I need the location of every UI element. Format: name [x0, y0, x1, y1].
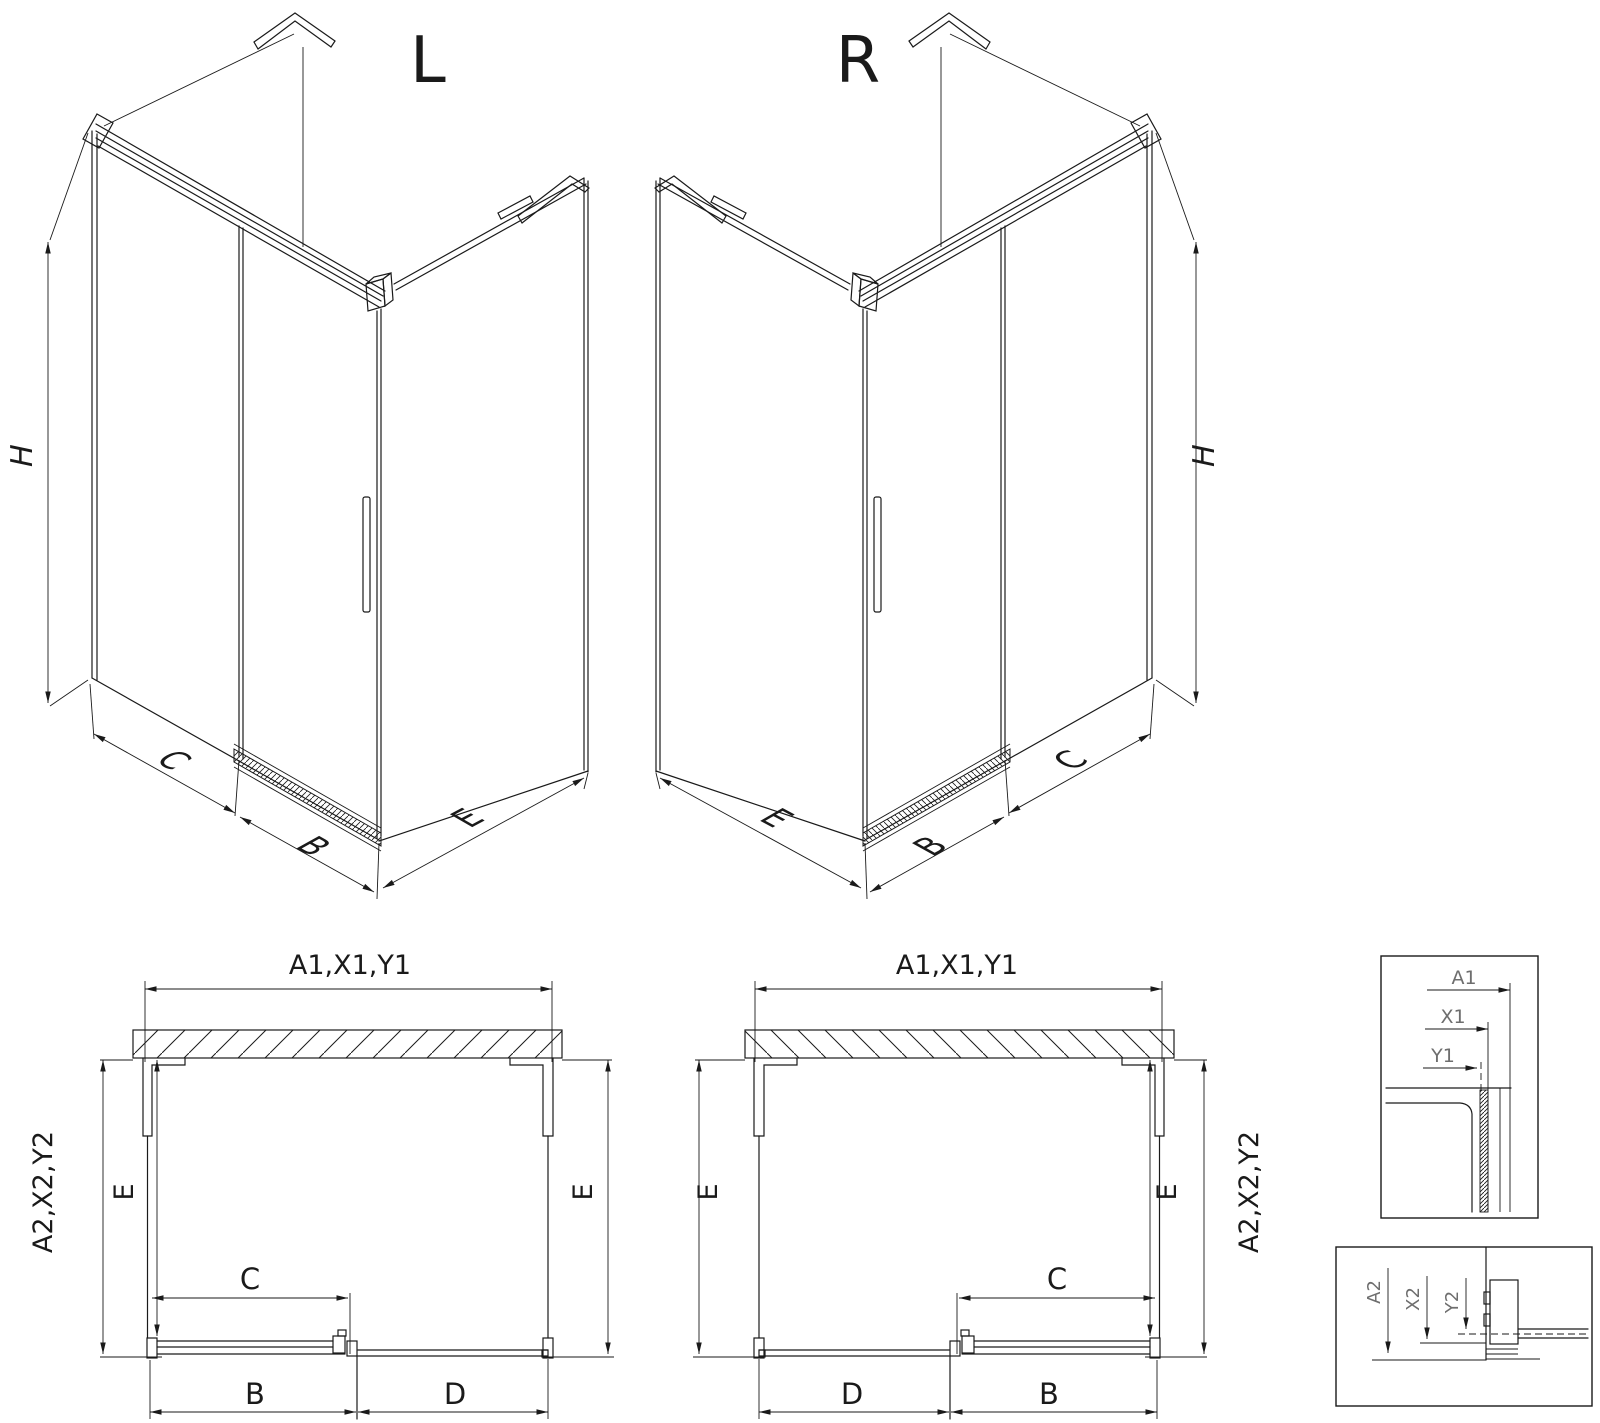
detail-bottom-box	[1336, 1247, 1592, 1406]
iso-right-c-label: C	[1044, 745, 1098, 775]
plan-right-top-label: A1,X1,Y1	[896, 950, 1018, 981]
plan-left-side-label: A2,X2,Y2	[28, 1131, 59, 1253]
detail-top-x1-label: X1	[1440, 1006, 1465, 1028]
iso-view-geometry	[48, 13, 589, 899]
detail-top-box	[1381, 956, 1538, 1218]
technical-drawing-page: L H C B E R H C B E A1,X1,Y1 A2,X2,Y2 E …	[0, 0, 1600, 1423]
plan-left-e-left-label: E	[109, 1183, 140, 1200]
iso-view-geometry-mirrored	[655, 13, 1196, 899]
plan-left-d-label: D	[444, 1377, 466, 1411]
plan-right-c-label: C	[1047, 1262, 1067, 1296]
plan-right-b-label: B	[1039, 1377, 1059, 1411]
detail-bottom-a2-label: A2	[1364, 1280, 1385, 1304]
detail-bottom-x2-label: X2	[1403, 1287, 1424, 1311]
plan-view-geometry	[100, 981, 614, 1419]
plan-left-c-label: C	[240, 1262, 260, 1296]
plan-left-b-label: B	[245, 1377, 265, 1411]
iso-right-h-label: H	[1187, 441, 1222, 471]
iso-left-e-label: E	[442, 803, 494, 832]
iso-left-b-label: B	[286, 831, 340, 861]
plan-right-e-right-label: E	[1152, 1183, 1183, 1200]
plan-right-d-label: D	[841, 1377, 863, 1411]
plan-left-top-label: A1,X1,Y1	[289, 950, 411, 981]
detail-bottom-y2-label: Y2	[1442, 1291, 1463, 1314]
iso-left-title: L	[410, 24, 446, 98]
plan-right-side-label: A2,X2,Y2	[1234, 1131, 1265, 1253]
shower-enclosure-drawing: L H C B E R H C B E A1,X1,Y1 A2,X2,Y2 E …	[0, 0, 1600, 1423]
detail-top-a1-label: A1	[1451, 967, 1476, 989]
detail-top-y1-label: Y1	[1430, 1045, 1455, 1067]
iso-right-title: R	[836, 24, 880, 98]
iso-left-h-label: H	[5, 441, 40, 471]
plan-right-e-left-label: E	[693, 1183, 724, 1200]
plan-view-geometry-mirrored	[693, 981, 1207, 1419]
plan-left-e-right-label: E	[568, 1183, 599, 1200]
iso-right-b-label: B	[904, 831, 958, 861]
iso-left-c-label: C	[146, 745, 200, 775]
iso-right-e-label: E	[750, 803, 802, 832]
